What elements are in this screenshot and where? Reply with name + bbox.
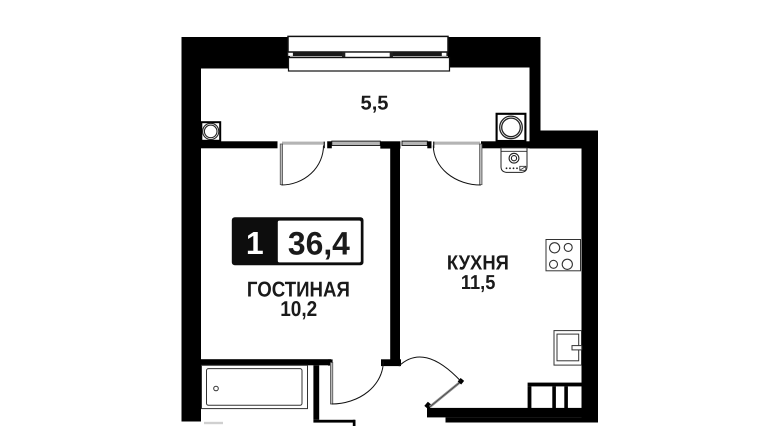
svg-text:1: 1 (246, 225, 264, 261)
svg-text:10,2: 10,2 (280, 297, 317, 321)
svg-text:11,5: 11,5 (461, 272, 496, 294)
svg-text:5,5: 5,5 (361, 92, 389, 114)
svg-text:36,4: 36,4 (288, 225, 350, 261)
